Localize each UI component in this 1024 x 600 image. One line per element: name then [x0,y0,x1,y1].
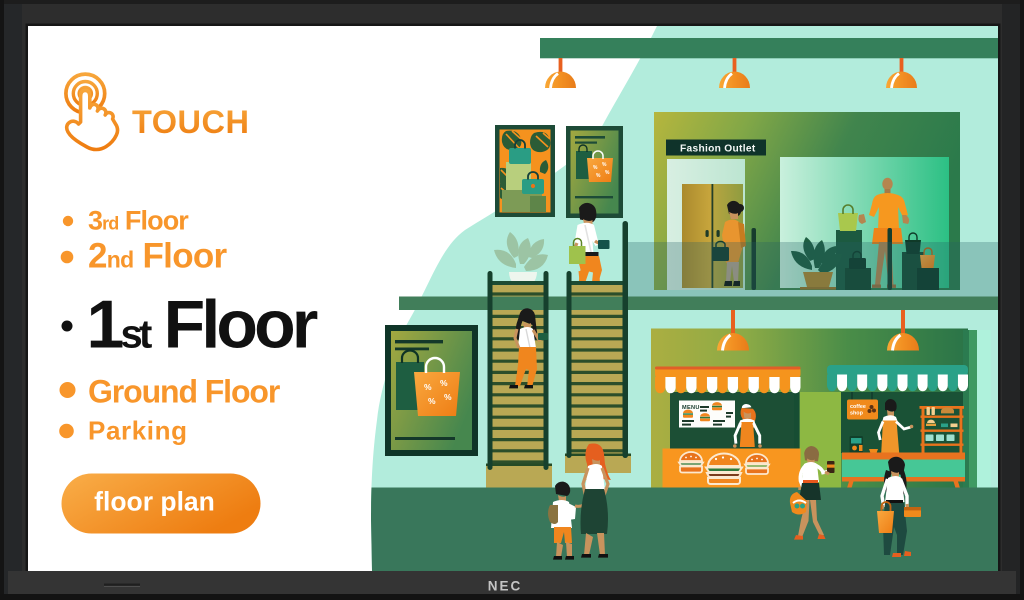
svg-text:shop: shop [850,411,864,417]
svg-text:coffee: coffee [850,404,866,410]
svg-text:NEC: NEC [488,579,523,594]
svg-text:Ground Floor: Ground Floor [88,374,280,410]
svg-text:%: % [444,392,452,402]
svg-text:floor plan: floor plan [94,487,215,517]
svg-text:%: % [440,378,448,388]
svg-text:%: % [605,170,610,176]
svg-text:%: % [428,396,436,406]
svg-text:%: % [596,173,601,179]
svg-text:MENU: MENU [682,405,700,411]
svg-text:%: % [424,382,432,392]
svg-text:%: % [602,162,607,168]
svg-text:Fashion Outlet: Fashion Outlet [680,144,756,155]
svg-text:TOUCH: TOUCH [132,104,249,140]
svg-text:%: % [593,165,598,171]
svg-text:Parking: Parking [88,416,188,446]
